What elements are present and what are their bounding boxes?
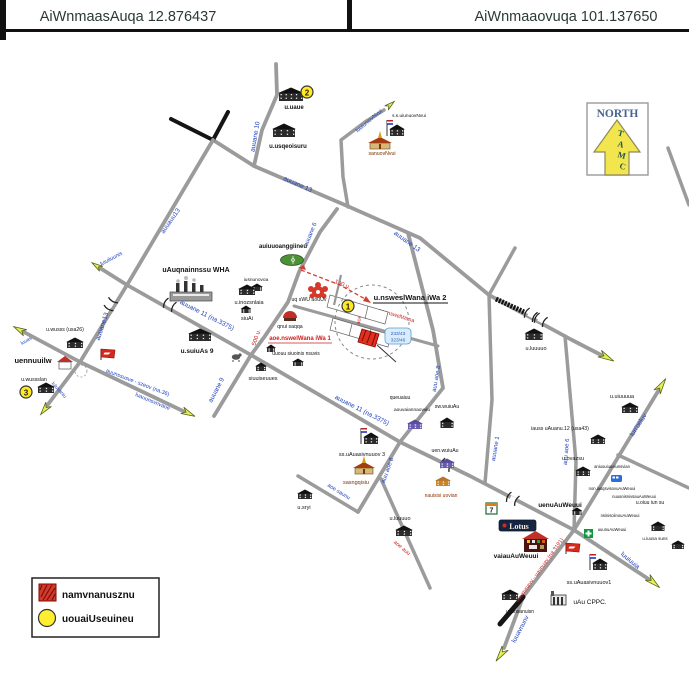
svg-text:auuane 11 (na.3375): auuane 11 (na.3375) (333, 394, 390, 427)
svg-text:ss.uAuasivnuuov 3: ss.uAuasivnuuov 3 (339, 452, 385, 458)
svg-text:2: 2 (305, 88, 310, 97)
svg-text:iusnunovoa: iusnunovoa (244, 277, 269, 283)
svg-text:uouaiUseuineu: uouaiUseuineu (62, 614, 134, 625)
svg-text:uuouu siuoinis nsuvis: uuouu siuoinis nsuvis (272, 351, 320, 357)
svg-text:sanuovNvui: sanuovNvui (368, 151, 395, 157)
svg-text:uennuuilw: uennuuilw (14, 356, 51, 365)
svg-text:uenuAuWeuui: uenuAuWeuui (538, 502, 582, 509)
svg-text:323/46: 323/46 (391, 338, 406, 344)
svg-text:u.luuuuo: u.luuuuo (389, 516, 410, 522)
svg-text:190 u.: 190 u. (334, 279, 352, 291)
svg-text:u.nsweslWana iWa 2: u.nsweslWana iWa 2 (374, 293, 447, 302)
svg-text:Lotus: Lotus (509, 522, 529, 531)
svg-text:uuunuAuWeuui: uuunuAuWeuui (598, 527, 627, 532)
svg-text:auuane 13: auuane 13 (282, 175, 313, 194)
svg-text:ss.uAuasivnuuov1: ss.uAuasivnuuov1 (567, 580, 612, 586)
svg-text:u.luuuuo: u.luuuuo (525, 346, 546, 352)
svg-text:siuAi: siuAi (241, 316, 253, 322)
svg-text:siuuiseuues: siuuiseuues (248, 376, 277, 382)
svg-text:AiWnmaaovuqa 101.137650: AiWnmaaovuqa 101.137650 (475, 9, 658, 25)
svg-text:aoe.nswelWana iWa 1: aoe.nswelWana iWa 1 (269, 336, 331, 342)
svg-text:u.suiuAs 9: u.suiuAs 9 (181, 348, 214, 355)
svg-text:u.oiuu iun su: u.oiuu iun su (636, 500, 665, 506)
svg-text:nsinisoiinouAuWeuui: nsinisoiinouAuWeuui (601, 513, 640, 518)
svg-text:uen.wuiuAu: uen.wuiuAu (431, 448, 458, 454)
svg-text:aouvaiannaovviu: aouvaiannaovviu (394, 407, 430, 413)
svg-text:u.iunsanuisn: u.iunsanuisn (506, 609, 534, 615)
svg-text:luuiuniovNvui: luuiuniovNvui (355, 108, 384, 134)
svg-text:uq sWU aouUv: uq sWU aouUv (292, 297, 327, 303)
svg-text:lun'oeluv: lun'oeluv (629, 412, 649, 438)
svg-text:uAu CPPC.: uAu CPPC. (573, 599, 606, 606)
svg-text:iauss uAuanu.12 (usa43): iauss uAuanu.12 (usa43) (531, 426, 589, 432)
svg-text:auuane 11 (na.3375): auuane 11 (na.3375) (178, 299, 235, 332)
svg-text:3: 3 (24, 388, 29, 397)
svg-text:sasngqisiu: sasngqisiu (343, 480, 369, 486)
svg-text:queuaiuu: queuaiuu (390, 395, 411, 401)
svg-text:auuane 1: auuane 1 (491, 435, 501, 461)
svg-text:s.s.uiunuovNvui: s.s.uiunuovNvui (392, 113, 426, 119)
svg-text:luiuiluunis: luiuiluunis (99, 251, 123, 268)
svg-text:NORTH: NORTH (597, 108, 639, 120)
svg-text:uAuqnainnssu WHA: uAuqnainnssu WHA (162, 267, 229, 274)
svg-text:aniuouiuueiunsvian: aniuouiuueiunsvian (594, 464, 631, 469)
svg-text:vaiauAuWeuui: vaiauAuWeuui (494, 553, 539, 560)
svg-text:u.sryi: u.sryi (297, 505, 310, 511)
svg-text:1: 1 (346, 302, 351, 311)
svg-text:u.wussslan: u.wussslan (21, 377, 47, 383)
svg-text:auiuuoanggiineu: auiuuoanggiineu (259, 244, 307, 250)
svg-text:namvnanusznu: namvnanusznu (62, 590, 135, 601)
svg-text:non.iasqsvisovuAuWeuui: non.iasqsvisovuAuWeuui (589, 486, 636, 491)
svg-text:qnui saqqa: qnui saqqa (277, 324, 302, 330)
svg-text:u.inozsnlaia: u.inozsnlaia (234, 300, 264, 306)
svg-text:u.uiuuuua: u.uiuuuua (610, 394, 635, 400)
svg-text:u.ovaz‌su: u.ovaz‌su (562, 456, 584, 462)
svg-text:auuane13: auuane13 (95, 311, 111, 341)
svg-text:nuuanisnivsauAuWeuui: nuuanisnivsauAuWeuui (612, 494, 656, 499)
svg-text:233/43: 233/43 (391, 331, 406, 337)
svg-text:sw.wuiuAu: sw.wuiuAu (435, 404, 460, 410)
svg-text:u.wusss (usa26): u.wusss (usa26) (46, 327, 84, 333)
svg-text:7: 7 (490, 508, 494, 515)
svg-text:u.uaue: u.uaue (284, 105, 304, 111)
svg-text:AiWnmaasAuqa 12.876437: AiWnmaasAuqa 12.876437 (40, 9, 217, 25)
svg-text:u.usqeoisuru: u.usqeoisuru (269, 144, 307, 150)
svg-text:nauisisi uovian: nauisisi uovian (425, 493, 458, 499)
svg-text:u.iuusa suns: u.iuusa suns (642, 536, 668, 541)
